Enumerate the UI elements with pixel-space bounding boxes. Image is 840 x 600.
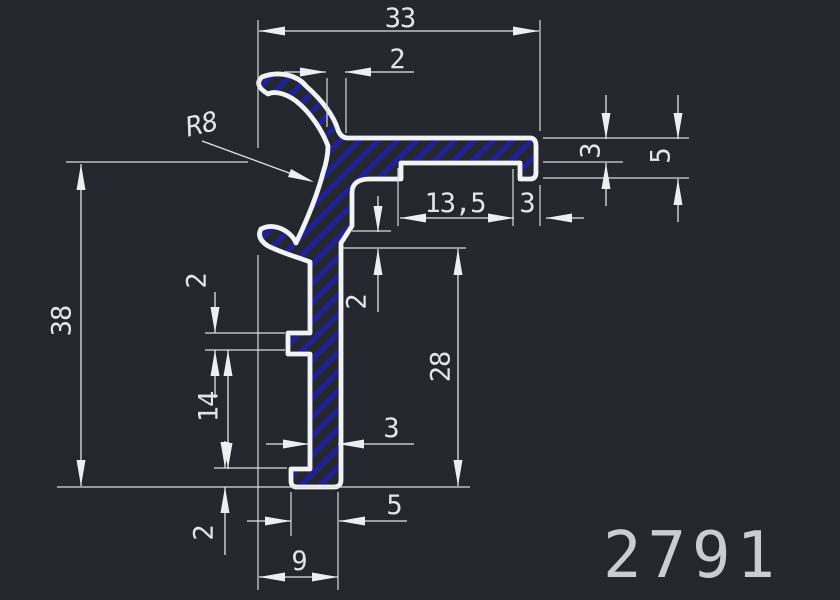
dim-right-foot-width-label: 3 [519, 188, 534, 219]
arrow-icon [674, 179, 683, 205]
arrow-icon [283, 440, 309, 449]
dim-arm-thickness-label: 3 [575, 143, 606, 158]
arrow-icon [77, 460, 86, 486]
arrow-icon [400, 214, 426, 223]
dim-total-width-label: 33 [385, 3, 416, 34]
dim-total-height-label: 38 [46, 306, 77, 337]
arrow-icon [221, 487, 230, 513]
arrow-icon [259, 573, 285, 582]
part-number-label: 2791 [603, 519, 781, 593]
arrow-icon [602, 113, 611, 139]
arrow-icon [513, 27, 539, 36]
dimension-lines [81, 31, 678, 577]
dim-stem-thickness-label: 3 [383, 413, 398, 444]
arrow-icon [339, 517, 365, 526]
dim-bottom-width-label: 9 [291, 546, 306, 577]
arrow-icon [211, 350, 220, 376]
arrow-icon [77, 164, 86, 190]
arrow-icon [300, 68, 326, 77]
dim-arm-end-height-label: 5 [645, 148, 676, 163]
dim-recess-width-label: 13,5 [424, 188, 485, 219]
extension-lines [57, 20, 689, 590]
arrow-icon [211, 307, 220, 333]
dim-notch-height-label: 2 [181, 273, 212, 288]
dim-foot-height-label: 2 [188, 525, 219, 540]
arrow-icon [602, 163, 611, 189]
dim-stem-height-label: 28 [425, 352, 456, 383]
dim-hook-wall-label: 2 [389, 44, 404, 75]
arrow-icon [265, 517, 291, 526]
arrow-icon [674, 113, 683, 139]
dimension-labels: 33 2 R8 13,5 3 3 5 38 2 14 2 28 3 5 9 2 [46, 3, 676, 577]
arrow-icon [546, 214, 572, 223]
dimension-arrows [77, 27, 683, 582]
dim-stem-step-label: 2 [341, 294, 372, 309]
dim-notch-to-foot-label: 14 [193, 392, 224, 423]
arrow-icon [488, 214, 514, 223]
arrow-icon [288, 169, 314, 182]
dim-foot-width-label: 5 [386, 490, 401, 521]
cad-drawing-canvas: 33 2 R8 13,5 3 3 5 38 2 14 2 28 3 5 9 2 … [0, 0, 840, 600]
dim-hook-radius-label: R8 [183, 106, 222, 144]
arrow-icon [224, 350, 233, 376]
arrow-icon [454, 249, 463, 275]
arrow-icon [454, 460, 463, 486]
arrow-icon [345, 68, 371, 77]
arrow-icon [374, 206, 383, 232]
arrow-icon [312, 573, 338, 582]
arrow-icon [374, 249, 383, 275]
arrow-icon [259, 27, 285, 36]
